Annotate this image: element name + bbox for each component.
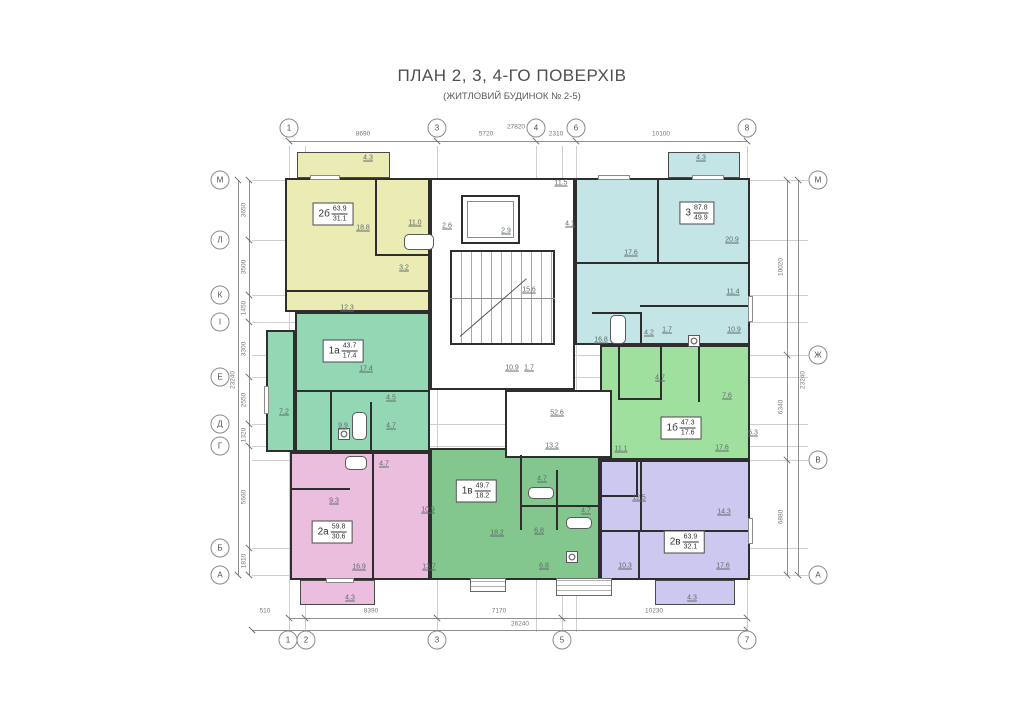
window [692,175,724,180]
washing-machine-icon [688,335,700,347]
room-area-label: 18.8 [356,225,370,232]
room-area-label: 7.2 [279,409,289,416]
dimension-total-line-left [238,180,239,575]
dimension-label: 3650 [241,203,248,217]
room-area-label: 6.3 [748,430,758,437]
room-area-label: 16.8 [594,337,608,344]
axis-circle-bottom: 1 [279,631,298,650]
apartment-area-living: 18.2 [476,492,490,500]
axis-circle-left: Б [211,539,230,558]
floor-plan-page: ПЛАН 2, 3, 4-ГО ПОВЕРХІВ (ЖИТЛОВИЙ БУДИН… [0,0,1024,724]
dimension-total-label: 23240 [230,371,237,389]
interior-wall [370,402,372,452]
window [326,578,354,583]
room-area-label: 13.7 [422,564,436,571]
room-area-label: 9.3 [329,498,339,505]
apartment-area-total: 87.8 [693,205,709,214]
room-area-label: 6.8 [534,528,544,535]
room-area-label: 15.6 [522,287,536,294]
dimension-label: 6340 [778,400,785,414]
axis-circle-top: 1 [280,119,299,138]
room-area-label: 52.6 [550,410,564,417]
window [748,518,753,544]
bathtub-icon [352,412,367,440]
plan-title: ПЛАН 2, 3, 4-ГО ПОВЕРХІВ [0,66,1024,86]
dimension-label: 6880 [778,510,785,524]
dimension-label: 1320 [241,428,248,442]
axis-circle-top: 8 [738,119,757,138]
apartment-area-total: 63.9 [332,206,348,215]
dimension-label: 510 [260,608,271,615]
entrance-steps [470,578,506,592]
room-area-label: 4.3 [345,595,355,602]
axis-circle-left: І [211,313,230,332]
dimension-label: 2550 [241,393,248,407]
dimension-label: 3300 [241,342,248,356]
axis-circle-bottom: 2 [297,631,316,650]
room-area-label: 4.7 [581,508,591,515]
room-area-label: 4.2 [644,330,654,337]
dimension-label: 1810 [241,554,248,568]
apartment-region-1b [600,345,750,460]
apartment-code: 2б [319,209,330,220]
interior-wall [330,392,332,452]
room-area-label: 4.3 [363,155,373,162]
apartment-code: 1в [462,486,473,497]
room-area-label: 12.5 [632,495,646,502]
interior-wall [618,345,620,400]
room-area-label: 1.7 [524,365,534,372]
room-area-label: 16.9 [352,564,366,571]
bathtub-icon [566,517,592,529]
axis-circle-top: 6 [567,119,586,138]
apartment-area-total: 49.7 [475,483,491,492]
apartment-code: 2в [670,537,681,548]
interior-wall [618,398,662,400]
room-area-label: 4.1 [565,221,575,228]
dimension-label: 3500 [241,260,248,274]
bathtub-icon [528,487,554,499]
interior-wall [660,345,662,400]
apartment-label-2v: 2в63.932.1 [664,531,705,554]
plan-subtitle: (ЖИТЛОВИЙ БУДИНОК № 2-5) [0,91,1024,102]
window [598,175,630,180]
axis-circle-bottom: 5 [553,631,572,650]
axis-circle-right: Ж [809,346,828,365]
window [310,175,340,180]
apartment-area-living: 30.6 [332,533,346,541]
dimension-label: 7170 [492,608,506,615]
apartment-label-1b: 1б47.317.6 [661,417,702,440]
dimension-line-top [289,141,747,142]
dimension-label: 1450 [241,301,248,315]
interior-wall [285,290,430,292]
apartment-area-living: 17.4 [343,352,357,360]
dimension-total-label: 26240 [511,621,529,628]
room-area-label: 4.3 [696,155,706,162]
axis-circle-top: 4 [527,119,546,138]
room-area-label: 2.9 [501,228,511,235]
apartment-label-2a: 2а59.830.6 [312,521,353,544]
elevator-shaft [461,195,520,244]
interior-wall [375,254,430,256]
room-area-label: 17.6 [624,250,638,257]
room-area-label: 6.8 [539,563,549,570]
interior-wall [372,452,374,580]
room-area-label: 10.9 [421,507,435,514]
apartment-label-1v: 1в49.718.2 [456,480,497,503]
apartment-label-2b: 2б63.931.1 [313,203,354,226]
room-area-label: 18.2 [490,530,504,537]
axis-circle-left: Д [211,415,230,434]
apartment-code: 3 [685,208,691,219]
room-area-label: 13.2 [545,443,559,450]
bathtub-icon [610,315,626,344]
dimension-label: 8390 [364,608,378,615]
axis-circle-bottom: 7 [738,631,757,650]
room-area-label: 4.5 [386,395,396,402]
interior-wall [640,312,642,345]
dimension-line-bottom [289,618,747,619]
axis-circle-left: Г [211,437,230,456]
apartment-area-total: 47.3 [680,420,696,429]
dimension-label: 10230 [645,608,663,615]
room-area-label: 11.4 [726,289,739,296]
apartment-area-total: 43.7 [342,343,358,352]
apartment-area-living: 31.1 [333,215,347,223]
dimension-label: 5660 [241,490,248,504]
entrance-steps [556,578,612,596]
room-area-label: 10.9 [727,327,741,334]
dimension-label: 10020 [778,258,785,276]
room-area-label: 10.9 [505,365,519,372]
room-area-label: 12.3 [340,305,354,312]
room-area-label: 2.6 [442,223,452,230]
room-area-label: 4.7 [537,476,547,483]
interior-wall [592,312,640,314]
interior-wall [290,488,350,490]
dimension-total-line-bottom [252,630,747,631]
interior-wall [520,455,522,530]
room-area-label: 17.6 [716,563,730,570]
interior-wall [575,262,750,264]
axis-circle-right: М [809,171,828,190]
dimension-total-label: 27820 [507,124,525,131]
room-area-label: 7.6 [722,393,732,400]
room-area-label: 11.5 [554,180,567,187]
axis-circle-left: Е [211,368,230,387]
apartment-area-living: 49.9 [694,214,708,222]
room-area-label: 4.3 [687,595,697,602]
dimension-label: 5720 [479,131,493,138]
axis-circle-left: А [211,566,230,585]
apartment-area-living: 32.1 [684,543,698,551]
interior-wall [638,530,640,580]
axis-circle-right: В [809,451,828,470]
axis-circle-left: М [211,171,230,190]
axis-circle-right: А [809,566,828,585]
room-area-label: 9.9 [338,423,348,430]
apartment-area-total: 59.8 [331,524,347,533]
room-area-label: 1.7 [662,327,672,334]
axis-circle-left: Л [211,231,230,250]
window [748,296,753,322]
apartment-area-total: 63.9 [683,534,699,543]
interior-wall [636,460,638,496]
apartment-label-1a: 1а43.717.4 [323,340,364,363]
apartment-area-living: 17.6 [681,429,695,437]
room-area-label: 17.6 [715,445,729,452]
bathtub-icon [345,456,367,470]
room-area-label: 20.9 [725,237,739,244]
apartment-region-2a [290,452,430,580]
room-area-label: 4.7 [386,423,396,430]
interior-wall [295,390,430,392]
bathtub-icon [404,234,434,250]
apartment-code: 1а [329,346,340,357]
washing-machine-icon [566,551,578,563]
axis-circle-top: 3 [428,119,447,138]
dimension-label: 8690 [356,131,370,138]
room-area-label: 11.0 [408,220,421,227]
apartment-code: 1б [667,423,678,434]
room-area-label: 4.7 [379,461,389,468]
apartment-region-1a [266,330,295,452]
dimension-total-label: 23240 [800,371,807,389]
washing-machine-icon [338,428,350,440]
dimension-line-right [787,180,788,575]
apartment-label-3: 387.849.9 [679,202,714,225]
balcony-2a [300,580,375,605]
interior-wall [657,178,659,262]
interior-wall [375,178,377,256]
room-area-label: 14.3 [717,509,731,516]
room-area-label: 10.3 [618,563,632,570]
dimension-label: 10100 [652,131,670,138]
interior-wall [640,305,750,307]
interior-wall [556,470,558,530]
room-area-label: 11.1 [614,446,627,453]
dimension-label: 2310 [549,131,563,138]
room-area-label: 17.4 [359,366,373,373]
window [264,386,269,414]
interior-wall [698,345,700,402]
axis-circle-bottom: 3 [428,631,447,650]
room-area-label: 3.2 [399,265,409,272]
axis-circle-left: К [211,286,230,305]
room-area-label: 4.7 [655,375,665,382]
apartment-code: 2а [318,527,329,538]
